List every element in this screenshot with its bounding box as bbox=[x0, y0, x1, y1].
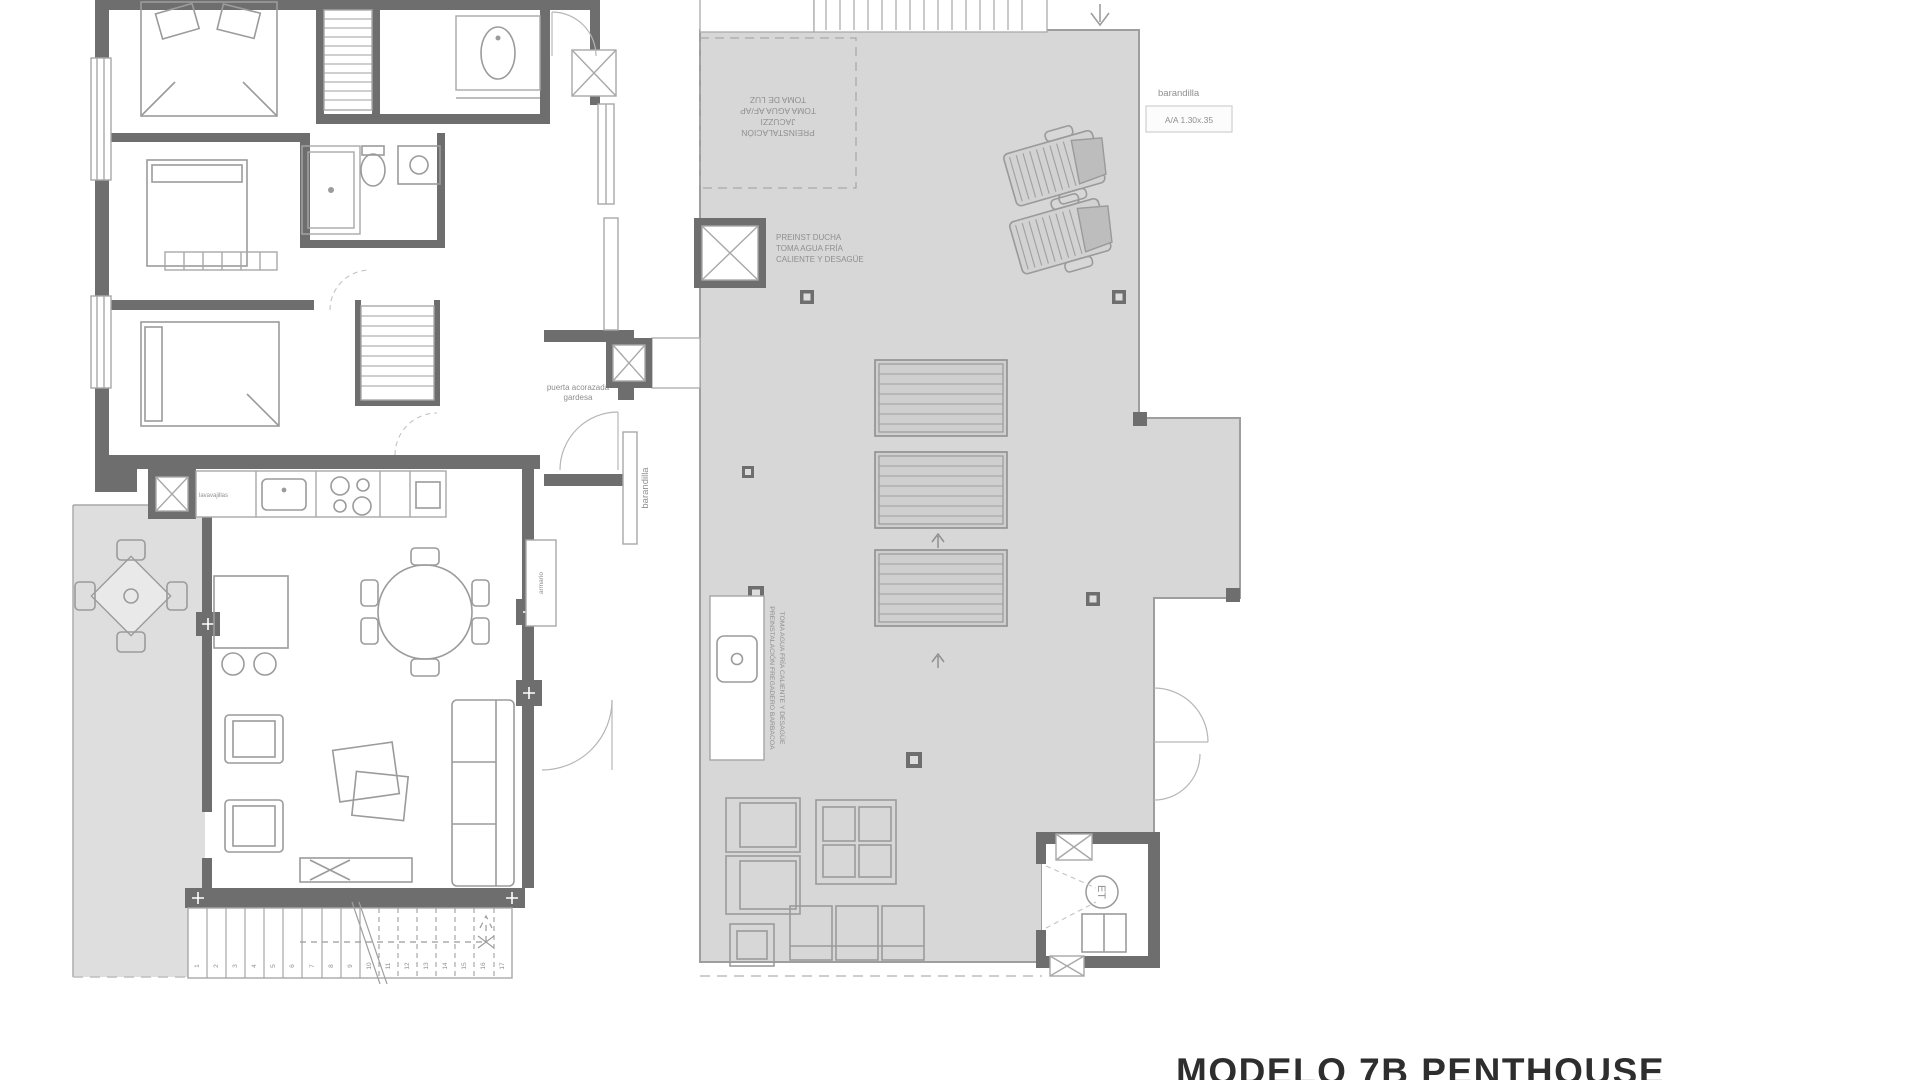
label-dishwasher: lavavajillas bbox=[199, 493, 228, 499]
svg-text:3: 3 bbox=[232, 964, 239, 968]
column-plus-marks bbox=[192, 606, 535, 904]
label-entrance-door-2: gardesa bbox=[564, 393, 593, 402]
down-arrow-icon bbox=[1091, 4, 1109, 25]
door-arc bbox=[395, 413, 437, 455]
label-shower-1: PREINST DUCHA bbox=[776, 233, 842, 242]
entrance-door-arc bbox=[560, 412, 618, 470]
solarium-plan: PREINSTALACIÓN JACUZZI TOMA AGUA AF/AP T… bbox=[606, 0, 1240, 976]
svg-text:7: 7 bbox=[309, 964, 316, 968]
svg-text:13: 13 bbox=[423, 962, 430, 970]
mid-stairs bbox=[361, 306, 434, 400]
upper-stairs bbox=[324, 10, 372, 110]
label-jacuzzi-2: JACUZZI bbox=[761, 117, 796, 127]
svg-text:6: 6 bbox=[289, 964, 296, 968]
label-barandilla-right: barandilla bbox=[1158, 88, 1200, 99]
bed-third bbox=[141, 322, 279, 426]
sofa bbox=[452, 700, 514, 886]
svg-text:4: 4 bbox=[251, 964, 258, 968]
label-barandilla-lower: barandilla bbox=[640, 467, 651, 509]
apartment-plan: barandilla barandilla puerta acorazada g… bbox=[73, 0, 651, 984]
svg-text:16: 16 bbox=[480, 962, 487, 970]
closet-label-box: armario bbox=[526, 540, 556, 626]
label-shower-2: TOMA AGUA FRÍA bbox=[776, 244, 844, 253]
technical-room: ET bbox=[1036, 832, 1160, 976]
svg-text:5: 5 bbox=[270, 964, 277, 968]
label-jacuzzi-4: TOMA DE LUZ bbox=[750, 95, 807, 105]
barbecue-sink: PREINSTALACIÓN FREGADERO BARBACOA TOMA A… bbox=[710, 596, 787, 760]
svg-text:11: 11 bbox=[385, 962, 392, 969]
label-closet: armario bbox=[538, 572, 545, 594]
label-entrance-door-1: puerta acorazada bbox=[547, 383, 610, 392]
svg-text:15: 15 bbox=[461, 962, 468, 970]
kitchen-island bbox=[214, 576, 288, 675]
svg-text:17: 17 bbox=[499, 962, 506, 970]
wardrobe bbox=[165, 252, 277, 270]
svg-text:9: 9 bbox=[347, 964, 354, 968]
lower-staircase: 1 2 3 4 5 6 7 8 9 10 11 12 13 14 15 16 1… bbox=[188, 902, 512, 984]
floor-plan-sheet: barandilla barandilla puerta acorazada g… bbox=[0, 0, 1920, 1080]
coffee-table bbox=[333, 742, 408, 821]
door-arc bbox=[542, 700, 612, 770]
ac-unit-box: A/A 1.30x.35 bbox=[1146, 106, 1232, 132]
pergola bbox=[875, 550, 1007, 626]
svg-text:10: 10 bbox=[366, 962, 373, 970]
svg-text:14: 14 bbox=[442, 962, 449, 970]
label-barbecue-2: TOMA AGUA FRÍA CALIENTE Y DESAGÜE bbox=[778, 612, 787, 745]
pergola bbox=[875, 452, 1007, 528]
svg-text:2: 2 bbox=[213, 964, 220, 968]
label-barbecue-1: PREINSTALACIÓN FREGADERO BARBACOA bbox=[768, 606, 777, 750]
floor-plan-canvas: barandilla barandilla puerta acorazada g… bbox=[0, 0, 1920, 1080]
pergola bbox=[875, 360, 1007, 436]
elevator-shaft bbox=[606, 338, 700, 388]
armchair bbox=[225, 715, 283, 852]
dining-table bbox=[361, 548, 489, 676]
svg-text:8: 8 bbox=[328, 964, 335, 968]
label-ac-unit: A/A 1.30x.35 bbox=[1165, 115, 1213, 125]
bathroom-mid bbox=[302, 146, 440, 234]
bed-second bbox=[147, 160, 247, 266]
closet-box bbox=[572, 50, 616, 96]
tv-bench bbox=[300, 858, 412, 882]
page-title: MODELO 7B PENTHOUSE bbox=[1176, 1051, 1665, 1080]
door-arc bbox=[330, 270, 370, 310]
label-telecom: ET bbox=[1095, 885, 1107, 899]
label-jacuzzi-3: TOMA AGUA AF/AP bbox=[740, 106, 816, 116]
svg-text:12: 12 bbox=[404, 962, 411, 970]
bed-master bbox=[141, 2, 277, 116]
roof-stair-opening bbox=[700, 0, 1109, 32]
label-jacuzzi-1: PREINSTALACIÓN bbox=[741, 128, 815, 138]
label-shower-3: CALIENTE Y DESAGÜE bbox=[776, 255, 864, 264]
bathroom-top bbox=[456, 16, 540, 98]
kitchen-counter: lavavajillas bbox=[196, 471, 446, 517]
svg-text:1: 1 bbox=[194, 964, 201, 968]
